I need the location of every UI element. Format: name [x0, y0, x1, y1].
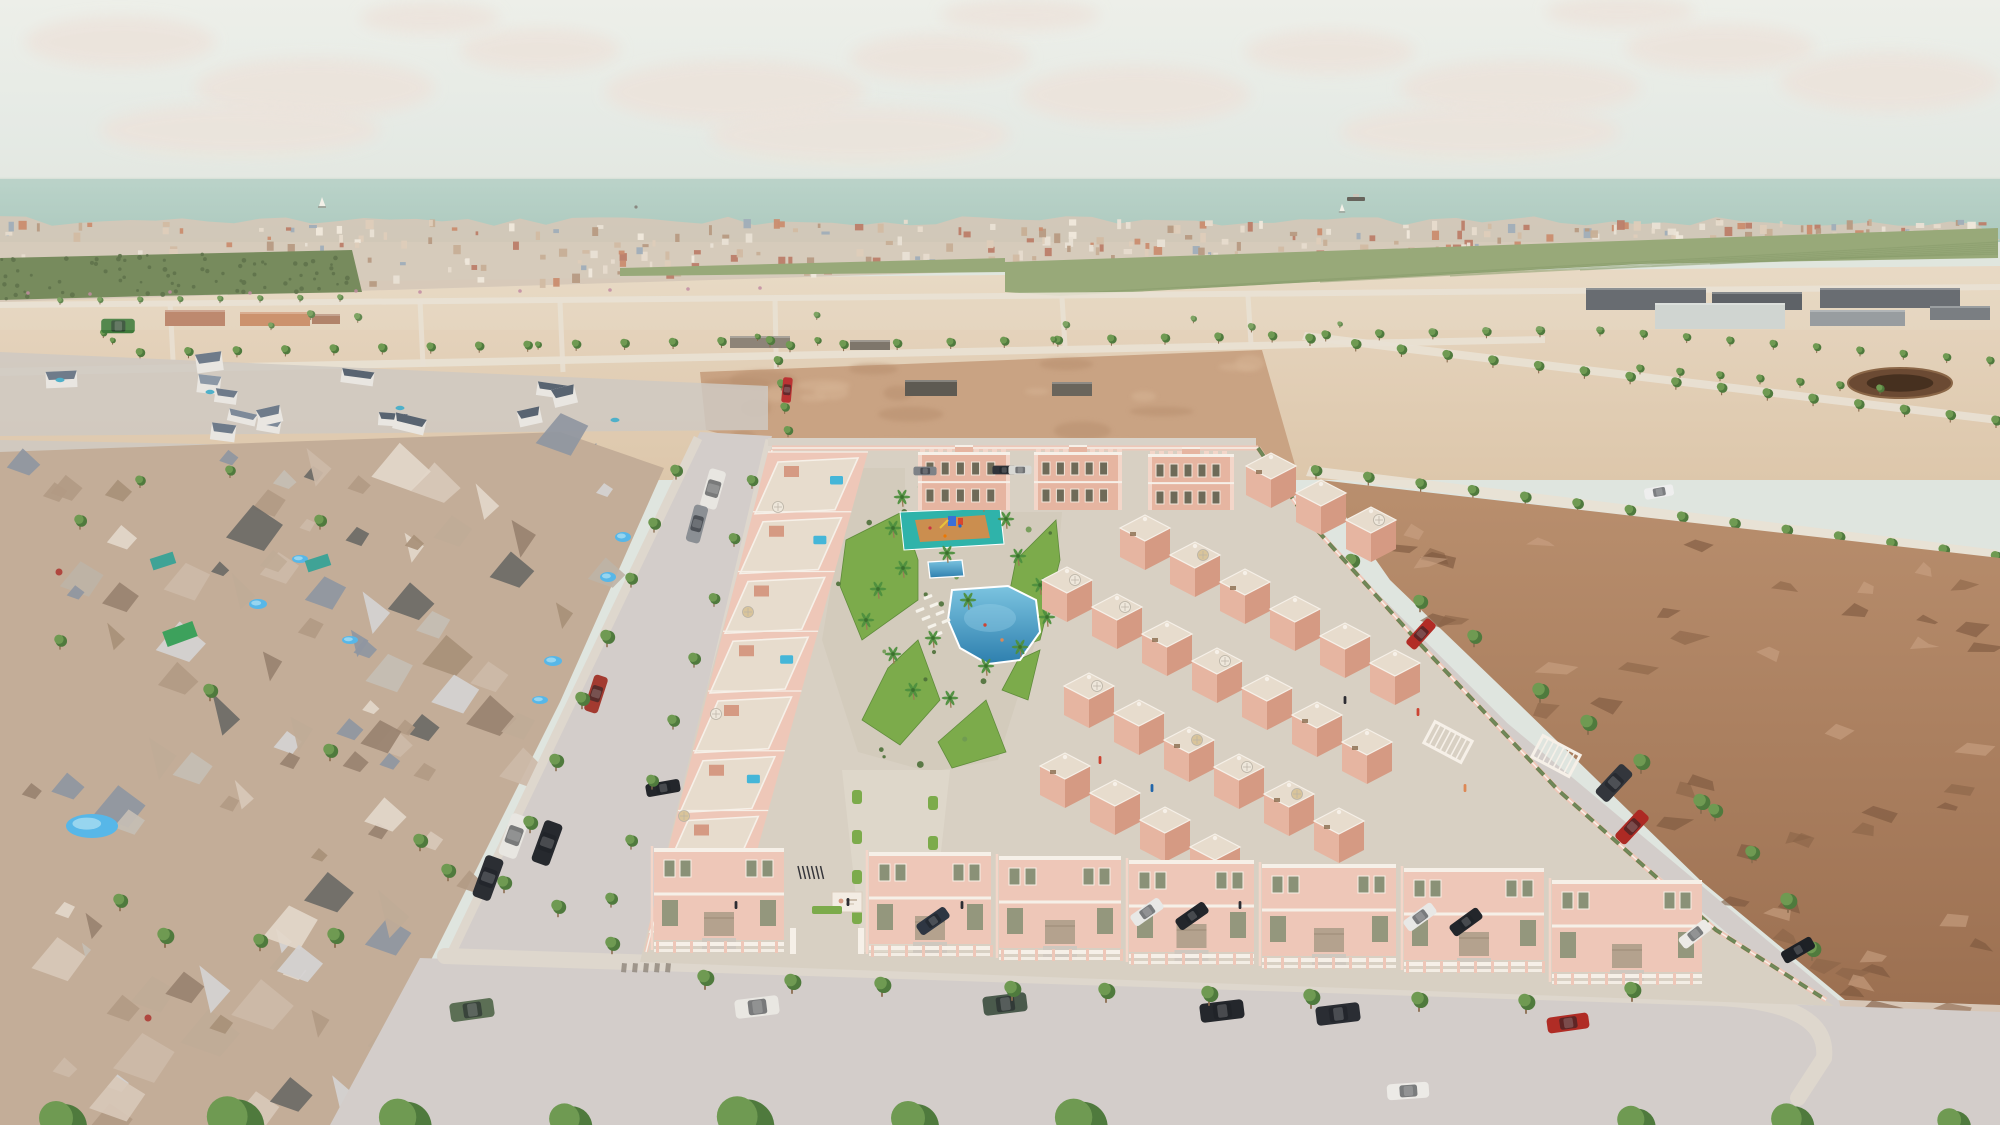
person	[847, 898, 850, 906]
parked-car	[1008, 466, 1031, 475]
person	[735, 901, 738, 909]
apartment-block	[918, 445, 1010, 510]
parasol	[1192, 735, 1203, 746]
parked-car	[1644, 484, 1675, 500]
parasol	[711, 709, 722, 720]
parasol	[1220, 656, 1231, 667]
parasol	[679, 811, 690, 822]
person	[1344, 696, 1347, 704]
person	[961, 901, 964, 909]
front-house	[867, 850, 993, 957]
parasol	[1292, 789, 1303, 800]
apartment-block	[1148, 447, 1234, 510]
scene-svg	[0, 0, 2000, 1125]
parked-car	[1386, 1082, 1429, 1101]
front-house	[652, 846, 784, 953]
parasol	[1092, 681, 1103, 692]
person	[1464, 784, 1467, 792]
parasol	[1198, 550, 1209, 561]
person	[1417, 708, 1420, 716]
apartment-block	[1034, 445, 1122, 510]
parasol	[1374, 515, 1385, 526]
atmospheric-haze	[0, 150, 2000, 330]
parasol	[1070, 575, 1081, 586]
front-house	[1260, 862, 1396, 969]
apartment-blocks	[913, 445, 1234, 510]
parasol	[743, 607, 754, 618]
parasol	[1242, 762, 1253, 773]
aerial-development-render	[0, 0, 2000, 1125]
parasol	[1120, 602, 1131, 613]
bullring	[1848, 368, 1952, 398]
parasol	[773, 502, 784, 513]
house	[195, 351, 224, 373]
front-house	[1550, 878, 1702, 985]
parked-car	[913, 467, 936, 476]
person	[1239, 901, 1242, 909]
front-house	[997, 854, 1123, 961]
person	[1099, 756, 1102, 764]
house	[210, 422, 237, 442]
person	[1151, 784, 1154, 792]
playground	[900, 508, 1004, 550]
